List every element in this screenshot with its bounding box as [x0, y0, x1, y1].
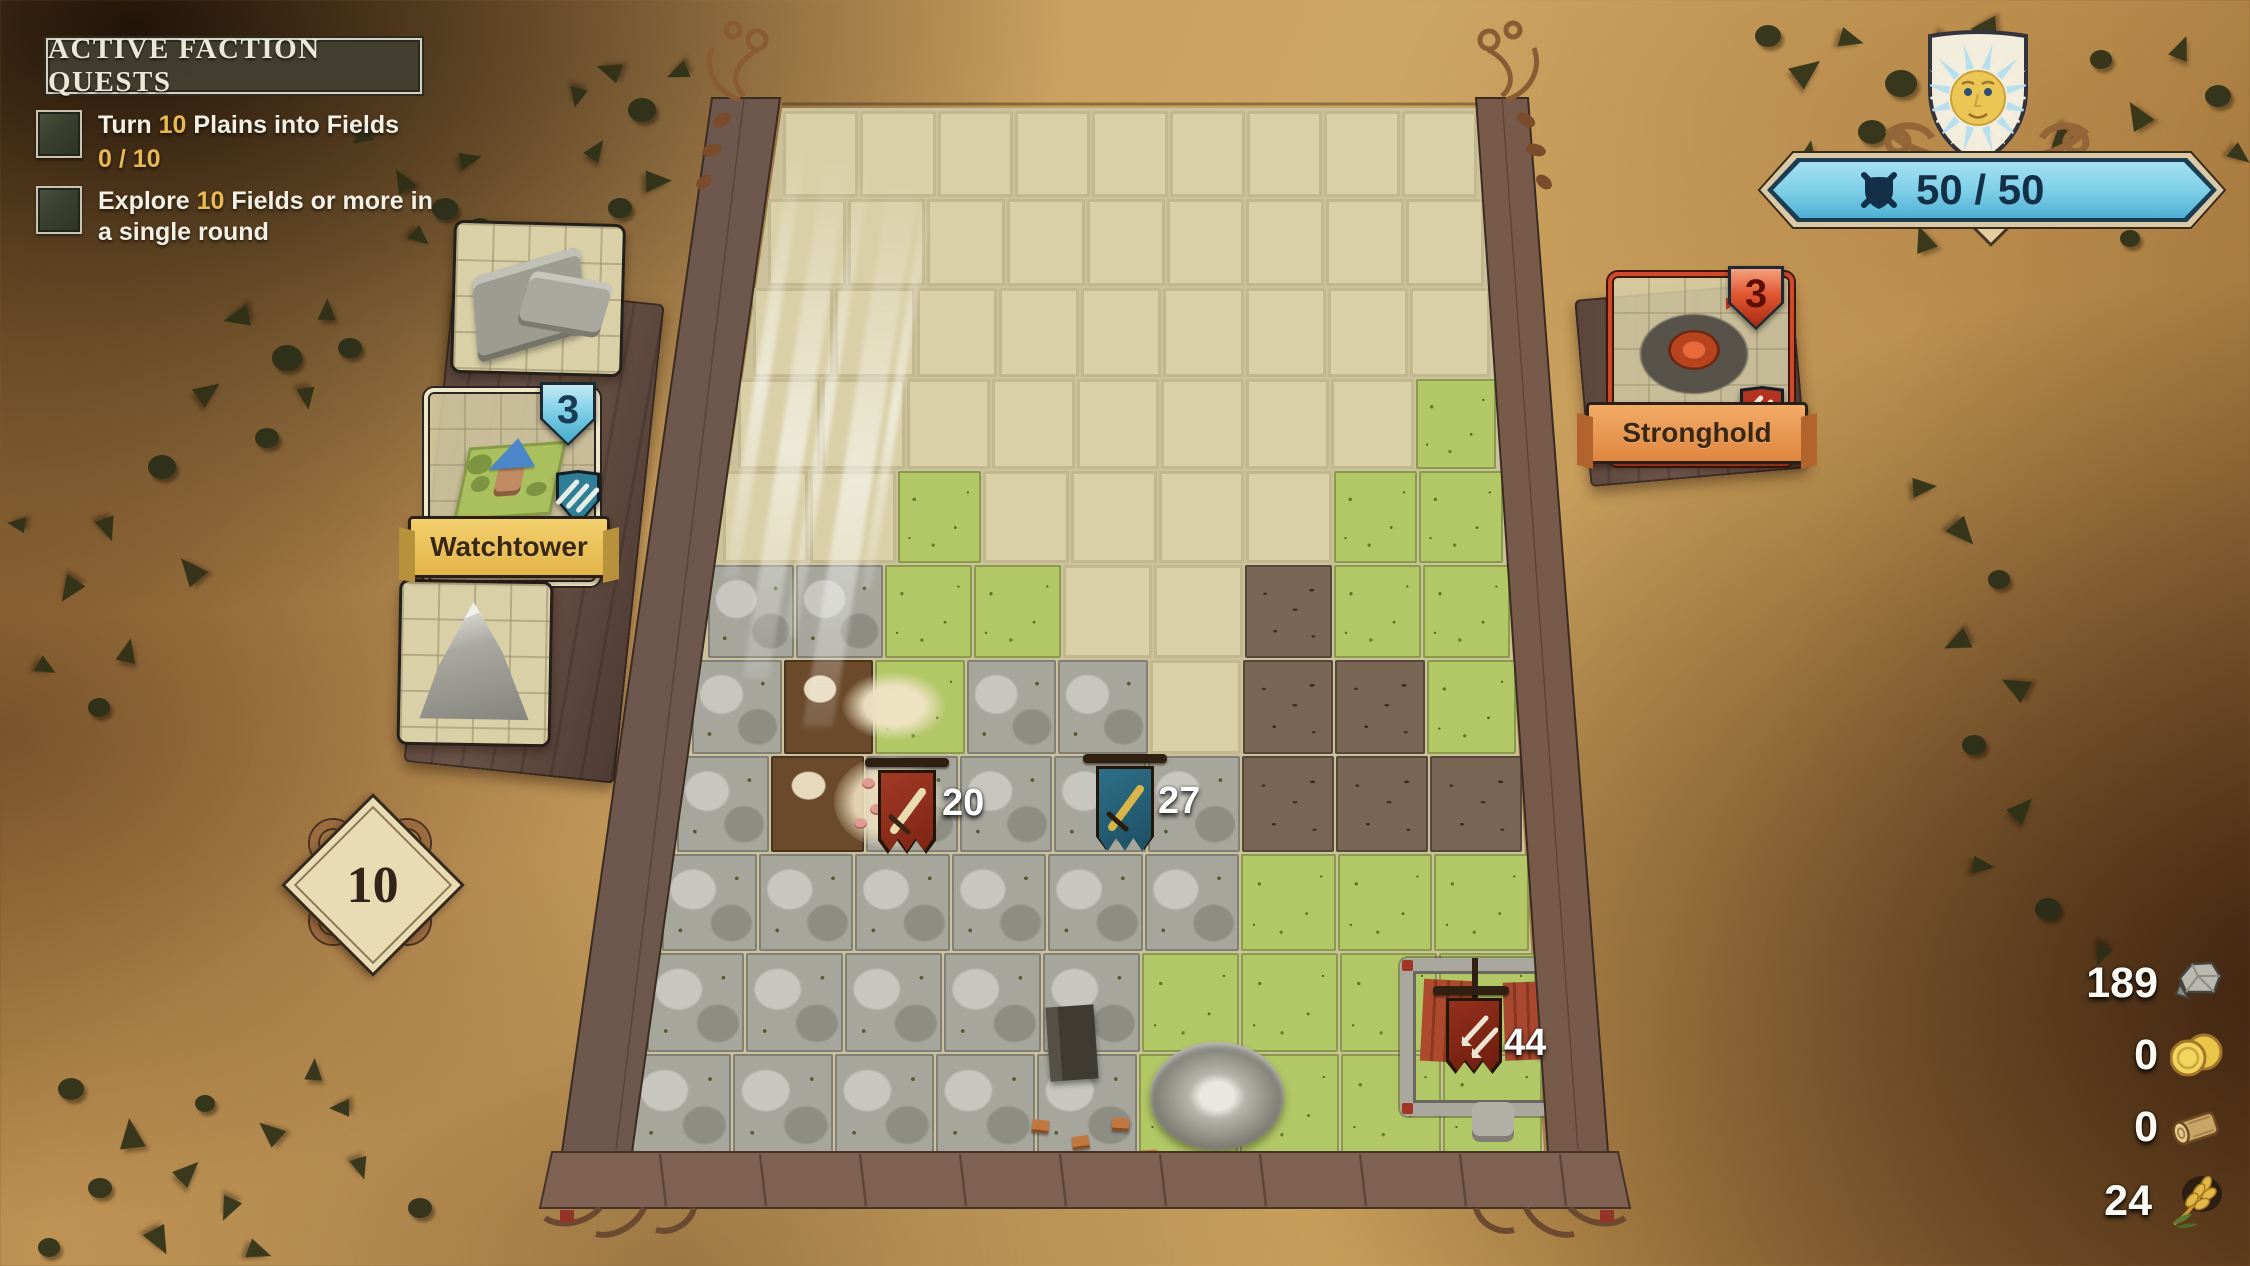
banner-pole-icon [1433, 986, 1509, 995]
wood-icon [2170, 1102, 2224, 1152]
stronghold-label-banner: Stronghold [1586, 402, 1808, 464]
stone-count: 189 [2028, 959, 2158, 1008]
arrows-icon [1454, 1008, 1498, 1064]
round-indicator: 10 [282, 794, 458, 970]
banner-pole-icon [865, 758, 949, 767]
stone-icon [2170, 958, 2224, 1008]
watchtower-label-banner: Watchtower [408, 516, 610, 578]
army-marker-red[interactable] [878, 770, 936, 854]
resource-wheat: 24 [2022, 1172, 2224, 1230]
sword-icon [1104, 776, 1146, 838]
army-strength-red: 20 [942, 782, 984, 825]
stronghold-count-badge: 3 [1728, 266, 1784, 330]
resource-wood: 0 [2028, 1102, 2224, 1152]
crossed-swords-shield-icon [1856, 167, 1902, 213]
fort-garrison-strength: 44 [1504, 1022, 1546, 1065]
sword-icon [886, 780, 928, 840]
fort-garrison-marker[interactable] [1446, 998, 1502, 1074]
resource-gold: 0 [2028, 1030, 2224, 1080]
wheat-count: 24 [2022, 1177, 2152, 1226]
watchtower-count-badge: 3 [540, 382, 596, 446]
morale-display: 50 / 50 [1856, 162, 2156, 218]
game-screen: { "quest_panel": { "title": "ACTIVE FACT… [0, 0, 2250, 1266]
round-number-diamond: 10 [281, 793, 465, 977]
coins-icon [2170, 1030, 2224, 1080]
resource-stone: 189 [2028, 958, 2224, 1008]
army-strength-blue: 27 [1158, 780, 1200, 823]
wheat-icon [2164, 1172, 2224, 1230]
wood-count: 0 [2028, 1103, 2158, 1152]
army-marker-blue[interactable] [1096, 766, 1154, 854]
gold-count: 0 [2028, 1031, 2158, 1080]
banner-pole-icon [1083, 754, 1167, 763]
morale-value: 50 / 50 [1916, 166, 2044, 214]
